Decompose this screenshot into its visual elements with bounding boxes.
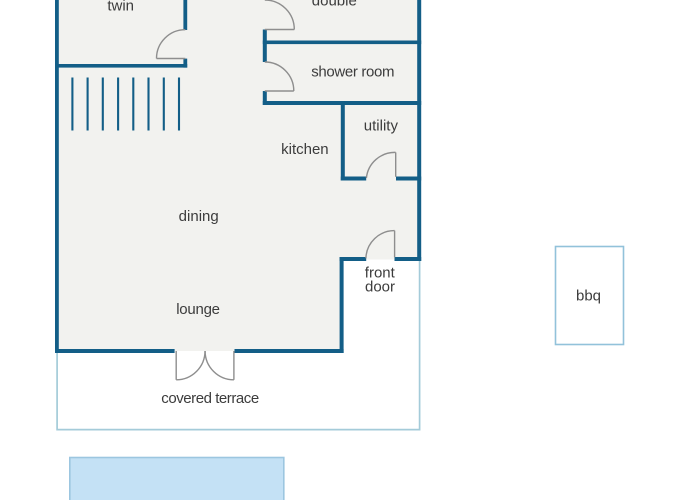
svg-text:covered terrace: covered terrace xyxy=(161,390,259,407)
svg-text:twin: twin xyxy=(107,0,134,15)
svg-text:door: door xyxy=(365,279,395,296)
svg-text:utility: utility xyxy=(364,118,399,135)
svg-text:shower room: shower room xyxy=(311,64,394,81)
svg-text:double: double xyxy=(312,0,357,10)
svg-text:kitchen: kitchen xyxy=(281,141,329,158)
svg-text:bbq: bbq xyxy=(576,288,601,305)
svg-text:lounge: lounge xyxy=(176,301,220,318)
svg-text:dining: dining xyxy=(179,208,219,225)
